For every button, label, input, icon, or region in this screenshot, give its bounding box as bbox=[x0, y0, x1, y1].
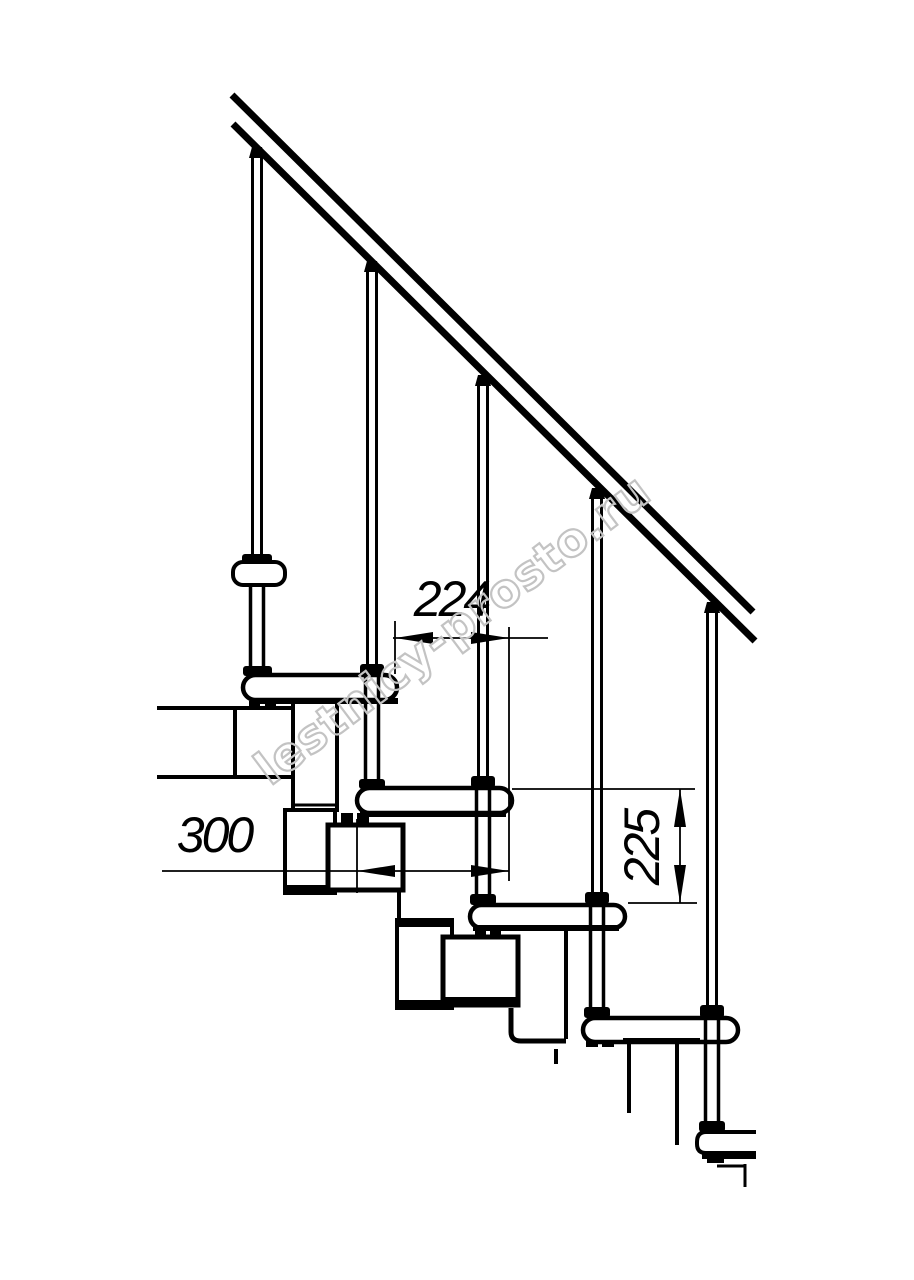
dimension-rise: 225 bbox=[512, 789, 697, 903]
tread-fragment bbox=[697, 1132, 756, 1153]
staircase-drawing: 224 300 225 lestnicy-prosto.ru bbox=[0, 0, 914, 1280]
dimension-label-tread-depth: 300 bbox=[177, 807, 255, 863]
baluster bbox=[699, 602, 725, 1132]
baluster bbox=[233, 147, 285, 676]
handrail bbox=[232, 95, 755, 641]
dimension-label-rise: 225 bbox=[614, 808, 670, 887]
watermark-text: lestnicy-prosto.ru bbox=[244, 463, 660, 795]
floor-break-lines bbox=[717, 1164, 745, 1187]
support-box bbox=[328, 825, 403, 890]
support-box bbox=[443, 937, 518, 1005]
baluster bbox=[584, 488, 610, 1018]
staircase-drawing-page: 224 300 225 lestnicy-prosto.ru bbox=[0, 0, 914, 1280]
rail-bracket bbox=[233, 562, 285, 585]
